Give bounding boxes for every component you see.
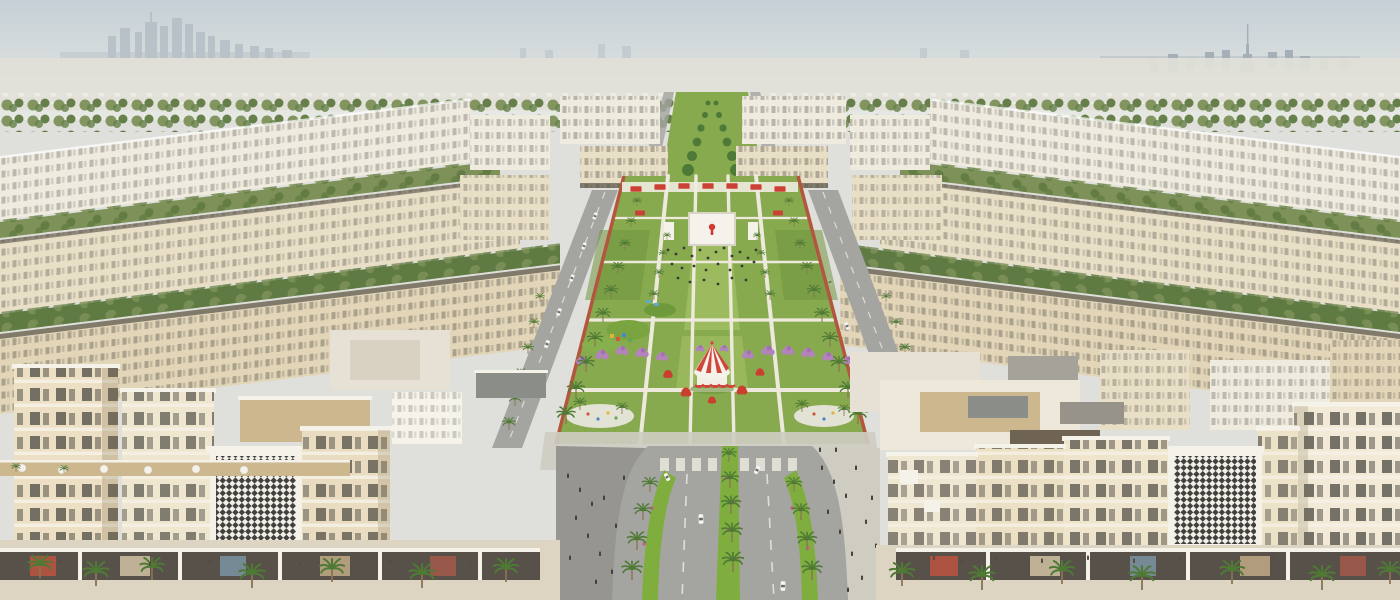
person — [595, 580, 597, 585]
canopy — [702, 183, 713, 189]
dot — [671, 263, 674, 266]
person — [59, 560, 61, 565]
dot — [729, 269, 732, 272]
tree — [697, 124, 704, 131]
dot — [677, 277, 680, 280]
tree — [713, 100, 718, 105]
person — [149, 562, 151, 567]
dot — [739, 251, 742, 254]
umbrella — [192, 465, 200, 473]
dot — [689, 281, 692, 284]
person — [1271, 556, 1273, 561]
person — [567, 474, 569, 479]
person — [599, 552, 601, 557]
canopy — [750, 184, 761, 190]
person — [861, 576, 863, 581]
tree — [719, 124, 726, 131]
person — [299, 562, 301, 567]
dot — [681, 267, 684, 270]
person — [821, 466, 823, 471]
apartment-block-a — [12, 364, 120, 546]
umbrella — [240, 466, 248, 474]
dot — [717, 263, 720, 266]
person — [855, 466, 857, 471]
tent-flag — [710, 341, 713, 344]
canopy — [678, 183, 689, 189]
person — [827, 510, 829, 515]
person — [995, 557, 997, 562]
person — [905, 558, 907, 563]
canopy — [630, 186, 641, 192]
apartment-block-rd — [974, 444, 1066, 560]
tree — [723, 138, 732, 147]
person — [1133, 559, 1135, 564]
tree — [682, 164, 694, 176]
plaza-kiosk — [900, 470, 918, 484]
dot — [715, 251, 718, 254]
person — [591, 502, 593, 507]
person — [1041, 559, 1043, 564]
person — [961, 560, 963, 565]
tree — [702, 112, 708, 118]
canopy — [726, 183, 737, 189]
mashrabiya-facade-right — [1164, 446, 1264, 550]
dot — [723, 247, 726, 250]
person — [851, 552, 853, 557]
canopy — [654, 184, 665, 190]
person — [819, 448, 821, 453]
person — [871, 496, 873, 501]
person — [579, 488, 581, 493]
person — [469, 562, 471, 567]
dot — [705, 269, 708, 272]
tree — [687, 151, 697, 161]
dot — [693, 265, 696, 268]
person — [587, 534, 589, 539]
dot — [741, 265, 744, 268]
dot — [753, 261, 756, 264]
aerial-city-render — [0, 0, 1400, 600]
person — [835, 448, 837, 453]
person — [615, 524, 617, 529]
person — [865, 520, 867, 525]
dot — [717, 283, 720, 286]
dot — [731, 277, 734, 280]
person — [623, 476, 625, 481]
dot — [675, 253, 678, 256]
dot — [703, 279, 706, 282]
person — [933, 556, 935, 561]
rooftop-panel — [476, 372, 546, 398]
person — [1087, 556, 1089, 561]
canopy — [774, 186, 785, 192]
person — [845, 494, 847, 499]
city-render-canvas — [0, 0, 1400, 600]
person — [603, 496, 605, 501]
podium-terrace — [0, 462, 350, 476]
person — [575, 516, 577, 521]
person — [847, 588, 849, 593]
dot — [667, 249, 670, 252]
foreground-circulation — [540, 432, 880, 600]
person — [839, 530, 841, 535]
tree — [716, 112, 722, 118]
umbrella — [100, 465, 108, 473]
dot — [707, 257, 710, 260]
dot — [755, 249, 758, 252]
car — [781, 581, 786, 591]
dot — [731, 255, 734, 258]
apartment-block-rc — [1062, 436, 1170, 560]
person — [389, 560, 391, 565]
tree — [705, 100, 710, 105]
dot — [691, 255, 694, 258]
dot — [747, 257, 750, 260]
person — [1179, 557, 1181, 562]
car — [698, 514, 703, 524]
apartment-block-d — [300, 426, 392, 554]
person — [209, 560, 211, 565]
canopy — [773, 211, 783, 216]
plaza-kiosk — [924, 500, 940, 512]
person — [569, 556, 571, 561]
central-boulevard — [560, 92, 846, 188]
dot — [699, 249, 702, 252]
canopy — [635, 211, 645, 216]
person — [833, 480, 835, 485]
tree — [727, 151, 737, 161]
dot — [745, 279, 748, 282]
dot — [683, 247, 686, 250]
person — [611, 570, 613, 575]
tree — [693, 138, 702, 147]
umbrella — [144, 466, 152, 474]
